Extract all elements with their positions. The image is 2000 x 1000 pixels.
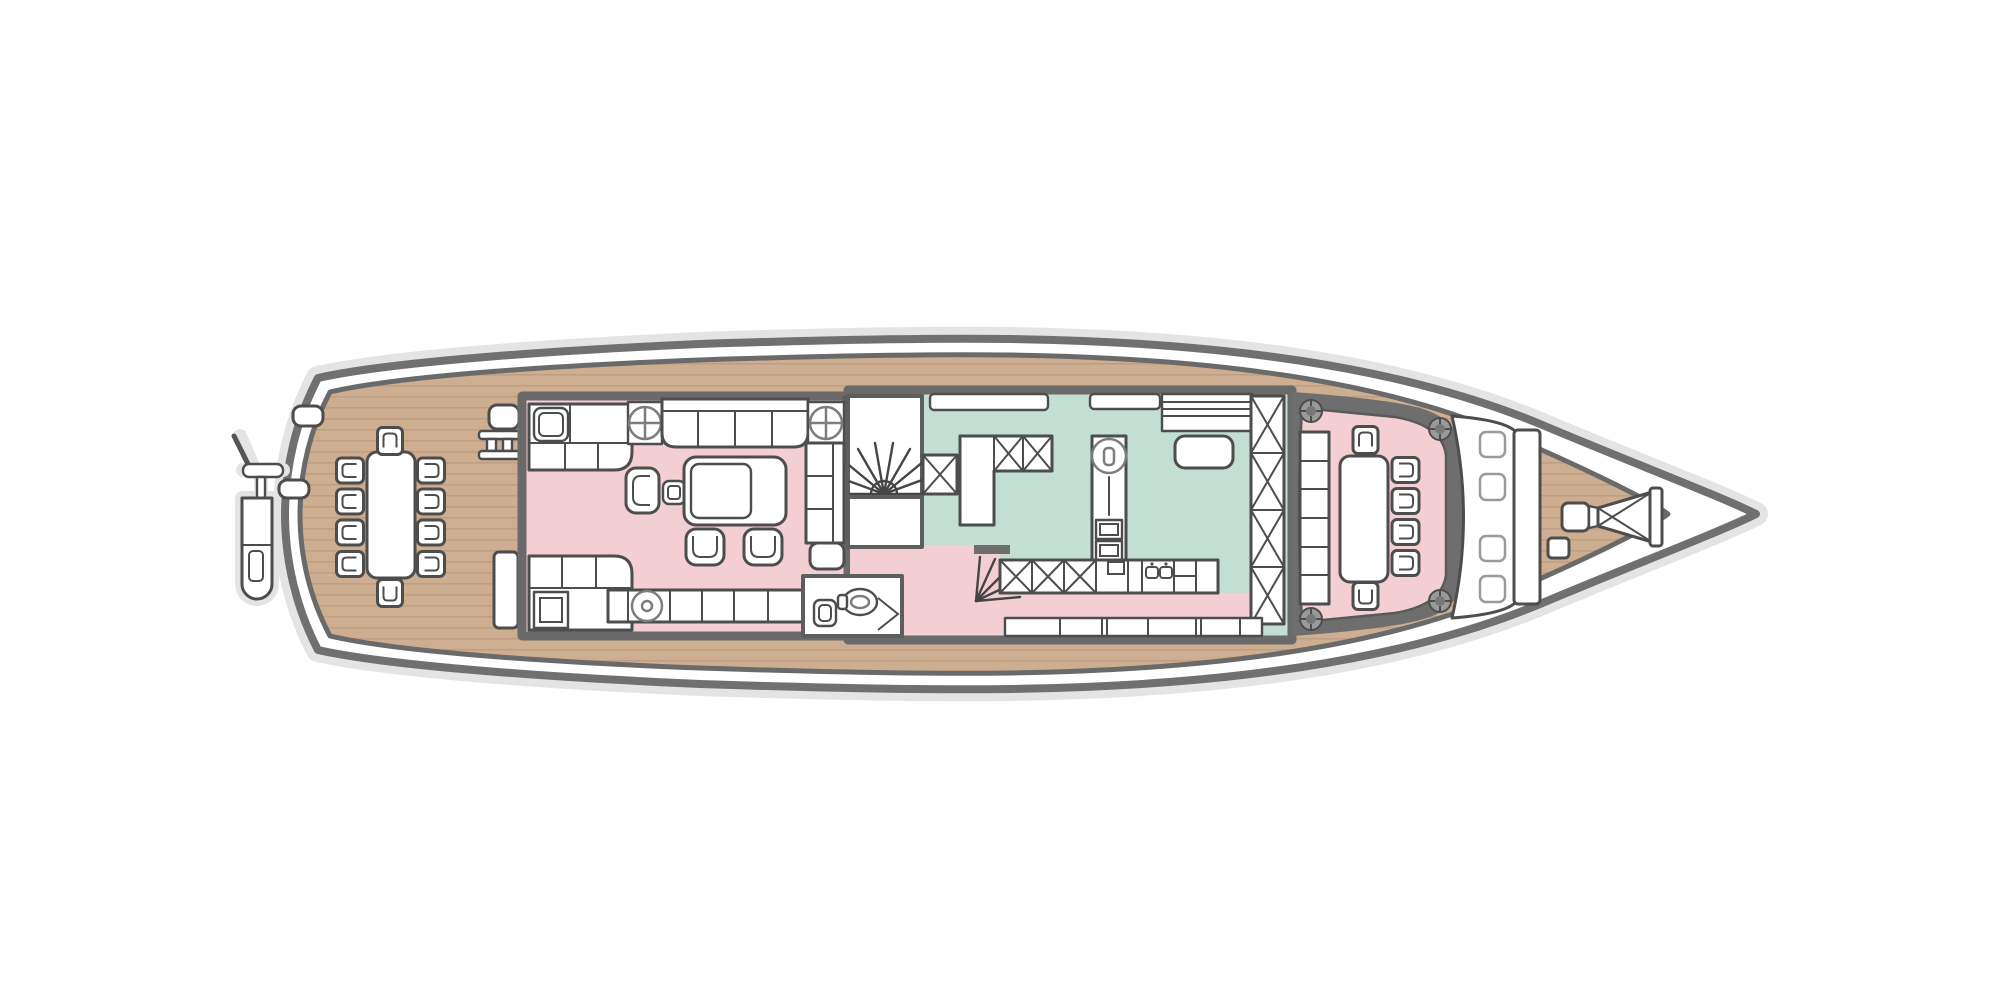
deck-box	[489, 405, 519, 429]
cockpit-chair	[1392, 489, 1419, 514]
dumbwaiter-x-box	[923, 455, 957, 494]
pedestal-table-forward	[808, 402, 844, 444]
cockpit-bench	[1300, 432, 1329, 604]
aft-dining-chair	[337, 520, 364, 545]
side-sofa-starboard	[806, 443, 844, 569]
salon-lounge-chair	[686, 529, 724, 565]
galley-island	[1092, 436, 1126, 563]
pedestal-table-port-aft	[628, 402, 662, 444]
cooktop	[1092, 439, 1126, 473]
cockpit-dining-table	[1340, 456, 1388, 582]
cockpit-chair	[1353, 583, 1378, 610]
aft-dining-chair	[378, 580, 403, 607]
passerelle-gangway	[242, 498, 272, 599]
tall-x-locker-column	[1251, 396, 1284, 624]
bench-cushion	[1480, 536, 1505, 561]
faucet	[838, 595, 847, 609]
side-deck-bench	[494, 552, 518, 628]
aft-dining-chair	[418, 520, 445, 545]
cockpit-chair	[1392, 458, 1419, 483]
bench-cushion	[1480, 576, 1505, 602]
credenza	[608, 590, 804, 622]
salon-side-table	[663, 481, 685, 504]
yacht-floor-plan-page	[0, 0, 2000, 1000]
pedestal-table-round	[632, 591, 662, 621]
aft-dining-chair	[418, 552, 445, 577]
windlass-motor	[1562, 503, 1589, 531]
aft-dining-chair	[418, 489, 445, 514]
salon-armchair	[626, 468, 659, 513]
stern-cleat	[279, 480, 309, 498]
bench-cushion	[1480, 432, 1505, 457]
salon-lounge-chair	[744, 529, 782, 565]
aft-dining-chair	[378, 428, 403, 455]
aft-dining-table	[367, 452, 415, 578]
aft-dining-chair	[418, 458, 445, 483]
corner-bolt	[1429, 418, 1451, 440]
corner-bolt	[1429, 590, 1451, 612]
aft-dining-chair	[337, 489, 364, 514]
galley-appliance-counter	[1175, 436, 1233, 468]
aft-dining-chair	[337, 552, 364, 577]
corner-bolt	[1300, 400, 1322, 422]
long-sofa-port	[662, 399, 808, 447]
aft-dining-chair	[337, 458, 364, 483]
coffee-table	[684, 457, 786, 525]
day-head-group	[803, 576, 902, 636]
cockpit-chair	[1353, 427, 1378, 454]
lower-galley-counter	[1000, 560, 1218, 593]
forward-cockpit-group	[1292, 392, 1462, 636]
stern-cleat	[293, 406, 323, 426]
bench-cushion	[1480, 474, 1505, 500]
bench-backrest-board	[1514, 430, 1540, 604]
yacht-floor-plan-svg	[0, 0, 2000, 1000]
foredeck-cleat	[1548, 538, 1569, 558]
corner-sofa-aft-port	[529, 404, 632, 470]
cockpit-chair	[1392, 520, 1419, 545]
corner-bolt	[1300, 608, 1322, 630]
bowsprit-endplate	[1650, 488, 1662, 546]
cockpit-chair	[1392, 551, 1419, 576]
passerelle-crossbar	[243, 464, 283, 477]
window-band	[1005, 618, 1262, 636]
toilet	[814, 600, 836, 626]
under-stair-closet	[848, 497, 922, 547]
